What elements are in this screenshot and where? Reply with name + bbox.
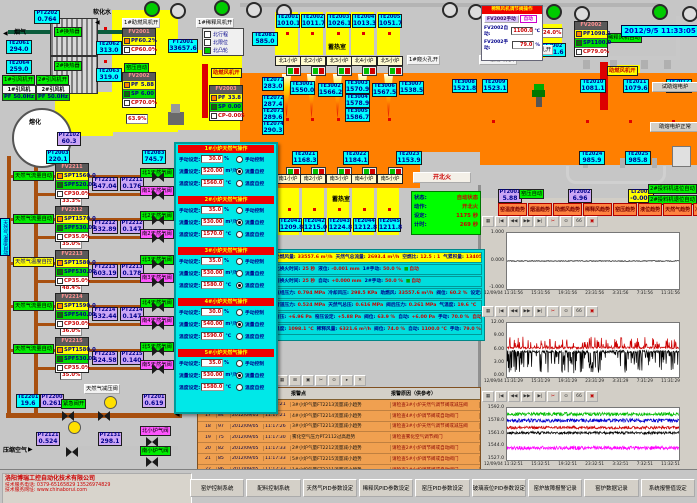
toolbar-icon[interactable]: ▣ (302, 375, 314, 386)
shape (532, 90, 545, 97)
setpoint-input[interactable]: 540.00 (201, 320, 224, 328)
button-1#稀释风机开[interactable]: 1#稀释风机开 (196, 18, 234, 28)
button-1#助燃风机开[interactable]: 1#助燃风机开 (122, 18, 160, 28)
meter-PT2202: PT22020.764 (34, 10, 60, 24)
valve-icon (152, 215, 164, 225)
meter-PT2131: PT2131298.1 (98, 432, 122, 446)
chart-y-axis: 1.0000.000-1.000 (480, 230, 504, 290)
radio-icon[interactable] (236, 180, 243, 187)
setpoint-field: 手动设定:35.0% (179, 206, 229, 214)
fan-vfd-box: 1#引风机PF 50.0Hz (2, 85, 36, 101)
button-1#窥火孔开[interactable]: 1#窥火孔开 (407, 55, 440, 65)
alarm-row-18[interactable]: 18972012/09/0511:17:263#小炉气量FT2213流量减小趋势… (198, 422, 480, 433)
meter-PT2003: PT2003220.1 (46, 150, 70, 164)
toolbar-icon[interactable]: 66 (573, 216, 585, 227)
label-压缩空气: 压缩空气 (2, 446, 28, 455)
chart-x-axis: 12/09/04 11:32:5115:32:5119:32:5123:32:5… (484, 461, 680, 466)
trend-button-天然气趋势[interactable]: 天然气趋势 (663, 203, 692, 216)
setpoint-field: 流量设定:530.00m³/h (179, 269, 238, 277)
valve-icon (146, 437, 158, 447)
radio-icon[interactable] (236, 372, 243, 379)
alarm-dot (363, 208, 366, 211)
fan-icon (574, 6, 590, 22)
chart-y-axis: 1592.01578.01561.01544.01527.0 (480, 405, 504, 461)
nav-button-窑炉故障报警记录[interactable]: 窑炉故障报警记录 (528, 479, 582, 497)
trend-chart-1 (506, 232, 680, 290)
radio-icon[interactable] (236, 219, 243, 226)
toolbar-icon[interactable]: ✂ (547, 391, 559, 402)
meter-TE2002: TE20021011.7 (301, 14, 325, 28)
label-蓄热室: 蓄热室 (331, 195, 351, 204)
toolbar-icon[interactable]: ▶| (534, 216, 546, 227)
trend-chart-2 (506, 322, 680, 378)
button-助熔电炉正常[interactable]: 助熔电炉正常 (650, 122, 697, 132)
radio-流量自控[interactable]: 流量自控 (236, 168, 264, 175)
toolbar-icon[interactable]: ◀◀ (508, 216, 520, 227)
toolbar-icon[interactable]: ▶▶ (521, 306, 533, 317)
reversal-status-panel: 状态:自动状态动作:开北火设定:1175 秒计时:269 秒 (411, 191, 481, 235)
toolbar-icon[interactable]: ✂ (315, 375, 327, 386)
meter-PT2121: PT21210.524 (36, 432, 60, 446)
meter-TE2063: TE2063319.0 (96, 68, 122, 82)
chart-toolbar: ▦|◀◀◀▶▶▶|✂⊙66▣ (482, 391, 598, 402)
alarm-dot (286, 118, 289, 121)
toolbar-icon[interactable]: ◀◀ (508, 306, 520, 317)
alarm-reason-header: 报警原因（供参考） (391, 390, 480, 397)
setpoint-field: 温度设定:1580.0℃ (179, 281, 231, 289)
status-row: 计时:269 秒 (414, 220, 478, 229)
manual-setpoint-input[interactable]: 79.0 (512, 41, 534, 49)
fan-vfd-box: 2#引风机PF 50.0Hz (36, 85, 70, 101)
burner-indicator (337, 66, 352, 76)
setpoint-input[interactable]: 35.0 (201, 257, 223, 265)
auto-setpoint-input[interactable]: 1100.0 (511, 27, 533, 35)
setpoint-input[interactable]: 520.00 (201, 167, 224, 175)
vendor-info-box: 洛阳博瑞工控自动化技术有限公司 技术服务电话: 0379-65165829 13… (2, 473, 192, 503)
setpoint-field: 流量设定:530.00m³/h (179, 371, 238, 379)
radio-温度自控[interactable]: 温度自控 (236, 384, 264, 391)
popup-section-title: 2#小炉天然气操作 (178, 196, 274, 204)
label-北小炉气阀: 北小炉气阀 (140, 426, 171, 436)
dilution-fan-valve-popup: 稀释风机调节阀操作 FV2002手动 自动 FV2002自动: 1100.0 ℃… (481, 5, 543, 61)
label-北1小炉: 北1小炉 (275, 56, 301, 66)
trend-button-液位趋势[interactable]: 液位趋势 (638, 203, 662, 216)
valve-icon (152, 277, 164, 287)
label-烟气: 烟气 (13, 28, 27, 37)
label-南5小炉: 南5小炉 (377, 174, 403, 184)
toolbar-icon[interactable]: |◀ (495, 216, 507, 227)
label-2#投料机进位自动: 2#投料机进位自动 (648, 184, 697, 194)
alarm-row-19[interactable]: 19752012/09/0511:17:30雾化空气压力PT2112过高趋势请检… (198, 432, 480, 443)
meter-TE3007: TE30071538.5 (399, 81, 424, 95)
label-南3小炉: 南3小炉 (326, 174, 352, 184)
meter-TE3003: TE30031570.9 (345, 80, 370, 94)
valve-icon (98, 411, 110, 421)
radio-温度自控[interactable]: 温度自控 (236, 231, 264, 238)
burner-gas-popup: 1#小炉天然气操作手动设定:30.0%流量设定:520.00m³/h温度设定:1… (174, 142, 278, 414)
meter-TE2003: TE20031026.1 (327, 14, 351, 28)
setpoint-input[interactable]: 1590.0 (201, 332, 224, 340)
red-damper-left (202, 64, 208, 118)
meter-TE2062: TE2062313.0 (96, 41, 122, 55)
radio-流量自控[interactable]: 流量自控 (236, 219, 264, 226)
radio-手动控制[interactable]: 手动控制 (236, 309, 264, 316)
radio-icon[interactable] (236, 168, 243, 175)
button-试助熔电炉[interactable]: 试助熔电炉 (652, 82, 697, 92)
setpoint-field: 流量设定:540.00m³/h (179, 320, 238, 328)
toolbar-icon[interactable]: ⊙ (328, 375, 340, 386)
alarm-dot (492, 120, 495, 123)
vendor-name: 洛阳博瑞工控自动化技术有限公司 (5, 475, 189, 483)
radio-手动控制[interactable]: 手动控制 (236, 207, 264, 214)
popup-section-1: 1#小炉天然气操作手动设定:30.0%流量设定:520.00m³/h温度设定:1… (178, 145, 274, 194)
setpoint-input[interactable]: 35.0 (201, 206, 223, 214)
alarm-point-header: 报警点 (291, 390, 391, 397)
alarm-dot (586, 120, 589, 123)
setpoint-input[interactable]: 530.00 (201, 269, 224, 277)
unit-label: % (535, 43, 540, 48)
nav-button-窑压PID参数设定[interactable]: 窑压PID参数设定 (415, 479, 469, 497)
label-天然气温度自控: 天然气温度自控 (13, 257, 54, 267)
shape (641, 60, 648, 69)
toolbar-icon[interactable]: ▶▶ (521, 216, 533, 227)
toolbar-icon[interactable]: ▶| (534, 391, 546, 402)
label-天然气减压阀: 天然气减压阀 (84, 384, 120, 394)
label-2012/9/511:33:05: 2012/9/5 11:33:05 (621, 25, 697, 37)
radio-icon[interactable] (236, 282, 243, 289)
valve-icon (62, 411, 74, 421)
setpoint-field: 流量设定:530.00m³/h (179, 218, 238, 226)
limit-row: 北限位 (204, 38, 242, 46)
chart-y-axis: 12.009.006.003.000.00 (480, 320, 504, 378)
toolbar-icon[interactable]: ▶| (534, 306, 546, 317)
meter-PT2002: PT20026.96 (568, 189, 592, 203)
bottom-bar: 洛阳博瑞工控自动化技术有限公司 技术服务电话: 0379-65165829 13… (0, 469, 697, 503)
label-天然气流量自动: 天然气流量自动 (13, 301, 54, 311)
nav-button-窑炉数据记录[interactable]: 窑炉数据记录 (584, 479, 638, 497)
meter-TE2043: TE20431224.8 (328, 218, 351, 232)
radio-温度自控[interactable]: 温度自控 (236, 180, 264, 187)
limit-row: 北行程 (204, 30, 242, 38)
status-row: 动作:开北火 (414, 202, 478, 211)
toolbar-icon[interactable]: ◀◀ (508, 391, 520, 402)
alarm-dot (362, 32, 365, 35)
meter-TE2022: TE20221184.1 (343, 151, 369, 165)
shape (171, 104, 180, 113)
trend-button-助燃风趋势[interactable]: 助燃风趋势 (553, 203, 582, 216)
bottom-button-row: 窑炉控制系统配料控制系统天然气PID参数设定稀释风PID参数设定窑压PID参数设… (190, 479, 695, 497)
toolbar-icon[interactable]: ⊙ (560, 391, 572, 402)
radio-icon[interactable] (236, 231, 243, 238)
label-熔化: 熔化 (28, 118, 42, 127)
label-天然气流量自动: 天然气流量自动 (13, 214, 54, 224)
popup-section-3: 3#小炉天然气操作手动设定:35.0%流量设定:530.00m³/h温度设定:1… (178, 247, 274, 296)
junction-box (672, 146, 691, 167)
burner-indicator (286, 66, 301, 76)
reversal-limit-box: 北行程北限位北凸轮 (202, 28, 244, 56)
radio-icon[interactable] (236, 309, 243, 316)
meter-TE2021: TE20211168.3 (292, 151, 318, 165)
unit-label: ℃ (534, 29, 540, 34)
status-row: 状态:自动状态 (414, 193, 478, 202)
burner-indicator (362, 66, 377, 76)
meter-TE2025: TE2025985.8 (625, 151, 651, 165)
toolbar-icon[interactable]: ⊞ (289, 375, 301, 386)
pressure-gauge (68, 421, 81, 434)
alarm-dot (388, 208, 391, 211)
process-status-panel: 助燃风量:33557.6 m³/h天然气总流量:2693.4 m³/h空燃比:1… (270, 249, 485, 341)
nav-button-稀释风PID参数设定[interactable]: 稀释风PID参数设定 (359, 479, 413, 497)
radio-icon[interactable] (236, 321, 243, 328)
meter-TE3005: TE30051586.7 (345, 108, 370, 122)
trend-button-窑温度趋势[interactable]: 窑温度趋势 (498, 203, 527, 216)
shape (36, 193, 151, 196)
setpoint-input[interactable]: 35.0 (201, 359, 223, 367)
radio-温度自控[interactable]: 温度自控 (236, 333, 264, 340)
alarm-dot (629, 120, 632, 123)
label-2#换热器: 2#换热器 (54, 61, 82, 71)
trend-button-稀释风趋势[interactable]: 稀释风趋势 (583, 203, 612, 216)
popup-section-title: 4#小炉天然气操作 (178, 298, 274, 306)
alarm-row-20[interactable]: 20822012/09/0511:17:332#小炉气量FT2212流量减小趋势… (198, 443, 480, 454)
setpoint-field: 手动设定:30.0% (179, 155, 229, 163)
setpoint-input[interactable]: 530.00 (201, 218, 224, 226)
radio-icon[interactable] (236, 156, 243, 163)
label-▶: ▶ (27, 445, 34, 454)
shape (583, 60, 590, 69)
popup-section-title: 3#小炉天然气操作 (178, 247, 274, 255)
shape (36, 236, 151, 239)
chart-toolbar: ▦|◀◀◀▶▶▶|✂⊙66▣ (482, 306, 598, 317)
controller-FV2002: FV2002PF5.88SP6.00CP70.0% (122, 72, 156, 108)
valve-icon (152, 190, 164, 200)
toolbar-icon[interactable]: |◀ (495, 391, 507, 402)
process-status-row: 北换火时间:25 秒液位:-0.001 mm1#手动:50.0 %■自动 (273, 264, 482, 275)
toolbar-icon[interactable]: ▣ (586, 391, 598, 402)
alarm-dot (104, 60, 107, 63)
trend-button-冷却气趋势[interactable]: 冷却气趋势 (693, 203, 697, 216)
meter-TE2071: TE2071283.0 (262, 77, 284, 91)
nav-button-窑炉控制系统[interactable]: 窑炉控制系统 (190, 479, 244, 497)
radio-手动控制[interactable]: 手动控制 (236, 360, 264, 367)
controller-FV2214: FV2214SPT1590.0SPF540.00CP30.0% (55, 293, 89, 329)
popup-title: 稀释风机调节阀操作 (482, 6, 542, 14)
valve-icon (152, 172, 164, 182)
toolbar-icon[interactable]: 66 (573, 306, 585, 317)
shape (536, 97, 542, 107)
setpoint-input[interactable]: 530.00 (201, 371, 224, 379)
alarm-dot (286, 32, 289, 35)
stirrer-machine (168, 112, 184, 125)
manual-setpoint-label: FV2002手动: (484, 39, 511, 51)
radio-流量自控[interactable]: 流量自控 (236, 372, 264, 379)
setpoint-field: 温度设定:1570.0℃ (179, 230, 231, 238)
popup-section-5: 5#小炉天然气操作手动设定:35.0%流量设定:530.00m³/h温度设定:1… (178, 349, 274, 398)
label-北3小炉: 北3小炉 (326, 56, 352, 66)
controller-FV2003: FV2003PF33.8SP0.00CP-0.005 (209, 85, 243, 121)
radio-icon[interactable] (236, 384, 243, 391)
meter-TE3002: TE30021566.2 (318, 83, 343, 97)
toolbar-icon[interactable]: ⊙ (560, 306, 572, 317)
label-窑压自动: 窑压自动 (519, 189, 544, 199)
toolbar-icon[interactable]: ✂ (547, 216, 559, 227)
meter-TE2083: TE2083745.7 (142, 150, 166, 164)
shape (36, 323, 151, 326)
toolbar-icon[interactable]: ▣ (586, 216, 598, 227)
setpoint-field: 手动设定:35.0% (179, 359, 229, 367)
label-63.9%: 63.9% (126, 114, 148, 124)
fan-icon (170, 3, 186, 19)
nav-button-玻璃液位PID参数设定[interactable]: 玻璃液位PID参数设定 (472, 479, 526, 497)
controller-FV2215: FV2215SPT1580.0SPF530.00CP35.0% (55, 337, 89, 373)
alarm-dot (311, 32, 314, 35)
setpoint-input[interactable]: 30.0 (201, 308, 223, 316)
toolbar-icon[interactable]: ▶▶ (521, 391, 533, 402)
chart-toolbar: ▦|◀◀◀▶▶▶|✂⊙66▣ (482, 216, 598, 227)
label-南4小炉: 南4小炉 (351, 174, 377, 184)
toolbar-icon[interactable]: ▦ (482, 306, 494, 317)
trend-chart-3 (506, 407, 680, 461)
controller-FV2001: FV2001PF60.2%CP60.0% (122, 28, 156, 55)
alarm-dot (337, 32, 340, 35)
setpoint-field: 手动设定:30.0% (179, 308, 229, 316)
label-南2小炉: 南2小炉 (300, 174, 326, 184)
fan-icon (682, 6, 697, 22)
alarm-dot (313, 208, 316, 211)
fan-icon (214, 0, 230, 16)
fan-icon (246, 2, 262, 18)
setpoint-field: 手动设定:35.0% (179, 257, 229, 265)
meter-FT2001: FT200133657.6 (168, 39, 198, 53)
meter-TE2074: TE2074290.3 (262, 121, 284, 135)
fan-icon (144, 1, 160, 17)
radio-icon[interactable] (236, 270, 243, 277)
valve-icon (146, 457, 158, 467)
setpoint-input[interactable]: 1560.0 (201, 179, 224, 187)
meter-TE2044: TE20441212.8 (353, 218, 376, 232)
meter-TE2042: TE20421215.0 (303, 218, 326, 232)
shape (664, 60, 671, 69)
toolbar-icon[interactable]: ▦ (482, 391, 494, 402)
setpoint-input[interactable]: 1570.0 (201, 230, 224, 238)
nav-button-配料控制系统[interactable]: 配料控制系统 (246, 479, 300, 497)
fan-icon (442, 2, 458, 18)
controller-FV2211: FV2211SPT1560.0SPF520.00CP30.0% (55, 163, 89, 199)
radio-流量自控[interactable]: 流量自控 (236, 270, 264, 277)
setpoint-field: 温度设定:1560.0℃ (179, 179, 231, 187)
meter-TE2073: TE2073289.6 (262, 108, 284, 122)
radio-icon[interactable] (236, 258, 243, 265)
nav-button-天然气PID参数设定[interactable]: 天然气PID参数设定 (303, 479, 357, 497)
trend-button-烟温趋势[interactable]: 烟温趋势 (528, 203, 552, 216)
radio-手动控制[interactable]: 手动控制 (236, 156, 264, 163)
toolbar-icon[interactable]: ▸ (341, 375, 353, 386)
meter-TE2004: TE20041013.3 (352, 14, 376, 28)
toolbar-icon[interactable]: ▣ (586, 306, 598, 317)
label-北5小炉: 北5小炉 (377, 56, 403, 66)
setpoint-input[interactable]: 1580.0 (201, 383, 224, 391)
popup-section-title: 5#小炉天然气操作 (178, 349, 274, 357)
valve-icon (152, 259, 164, 269)
nav-button-系统报警值设定[interactable]: 系统报警值设定 (641, 479, 695, 497)
radio-icon[interactable] (236, 333, 243, 340)
button-紧急阀开[interactable]: 紧急阀开 (61, 399, 86, 409)
pipe-gas-main (6, 413, 182, 418)
meter-PT2102: PT210260.3 (57, 132, 81, 146)
alarm-dot (337, 118, 340, 121)
radio-icon[interactable] (236, 207, 243, 214)
meter-TE2081: TE2081585.0 (252, 32, 278, 46)
setpoint-input[interactable]: 30.0 (201, 155, 223, 163)
toolbar-icon[interactable]: |◀ (495, 306, 507, 317)
radio-icon[interactable] (236, 360, 243, 367)
label-北2小炉: 北2小炉 (300, 56, 326, 66)
toolbar-icon[interactable]: ⊙ (560, 216, 572, 227)
pipe-loop (566, 166, 666, 184)
valve-icon (152, 364, 164, 374)
toolbar-icon[interactable]: ▦ (482, 216, 494, 227)
radio-流量自控[interactable]: 流量自控 (236, 321, 264, 328)
toolbar-icon[interactable]: 66 (573, 391, 585, 402)
process-status-row: 窑压:+6.96 Pa窑压设定:+5.88 Pa阀位:63.9 %自动:+6.0… (273, 312, 482, 323)
label-1#换热器: 1#换热器 (54, 27, 82, 37)
meter-PT2201: PT22010.619 (142, 394, 166, 408)
chart-x-axis: 12/09/04 11:31:2915:31:2919:31:2923:31:2… (484, 378, 680, 383)
setpoint-field: 温度设定:1580.0℃ (179, 383, 231, 391)
trend-button-窑压趋势[interactable]: 窑压趋势 (613, 203, 637, 216)
burner-indicator (388, 66, 403, 76)
controller-FV2212: FV2212SPT1570.0SPF530.00CP35.0% (55, 206, 89, 242)
label-◀: ◀ (2, 29, 9, 38)
meter-TE2072: TE2072287.4 (262, 95, 284, 109)
auto-setpoint-label: FV2002自动: (484, 25, 510, 37)
meter-TE2001: TE20011010.1 (276, 14, 300, 28)
toolbar-icon[interactable]: ✕ (354, 375, 366, 386)
hmi-screen: 北行程北限位北凸轮 状态:自动状态动作:开北火设定:1175 秒计时:269 秒… (0, 0, 697, 503)
valve-icon (152, 346, 164, 356)
toolbar-icon[interactable]: ✂ (547, 306, 559, 317)
chart-x-axis: 12/09/04 11:31:5615:31:5619:31:5623:31:5… (484, 290, 680, 295)
radio-温度自控[interactable]: 温度自控 (236, 282, 264, 289)
process-status-row: 助燃风量:33557.6 m³/h天然气总流量:2693.4 m³/h空燃比:1… (273, 252, 482, 263)
fv2002-manual-button[interactable]: FV2002手动 (484, 15, 519, 23)
process-status-row: 温度:1098.1 ℃稀释风量:6321.6 m³/h阀位:74.0 %自动:1… (273, 324, 482, 335)
meter-TE2011: TE20111079.6 (623, 79, 649, 93)
meter-TE2201: TE220119.6 (16, 394, 40, 408)
alarm-row-21[interactable]: 21852012/09/0511:17:335#小炉气量FT2215流量减小趋势… (198, 454, 480, 465)
label-南1小炉: 南1小炉 (275, 174, 301, 184)
label-蓄热室: 蓄热室 (327, 43, 347, 52)
label-天然气流量自动: 天然气流量自动 (13, 171, 54, 181)
setpoint-field: 温度设定:1590.0℃ (179, 332, 231, 340)
fan-icon (652, 4, 668, 20)
label-天然气温度自动: 天然气温度自动 (0, 218, 10, 256)
radio-手动控制[interactable]: 手动控制 (236, 258, 264, 265)
alarm-dot (104, 27, 107, 30)
meter-TE3008: TE30081521.8 (452, 79, 477, 93)
setpoint-input[interactable]: 1580.0 (201, 281, 224, 289)
burner-indicator (311, 66, 326, 76)
meter-TE2024: TE2024985.9 (579, 151, 605, 165)
fv2002-auto-button[interactable]: 自动 (520, 15, 537, 23)
vendor-website: 技术服务网址: www.chinaborui.com (5, 488, 189, 494)
meter-TE2041: TE20411209.8 (279, 218, 302, 232)
popup-section-4: 4#小炉天然气操作手动设定:30.0%流量设定:540.00m³/h温度设定:1… (178, 298, 274, 347)
controller-FV2002: FV2002PF1098.1SP1100.0CP79.0% (574, 21, 608, 57)
process-status-row: 瓶组压力:0.794 MPa冷却风压:298.5 KPa助燃风:33557.6 … (273, 288, 482, 299)
button-开北火[interactable]: 开北火 (413, 172, 471, 183)
alarm-dot (311, 118, 314, 121)
